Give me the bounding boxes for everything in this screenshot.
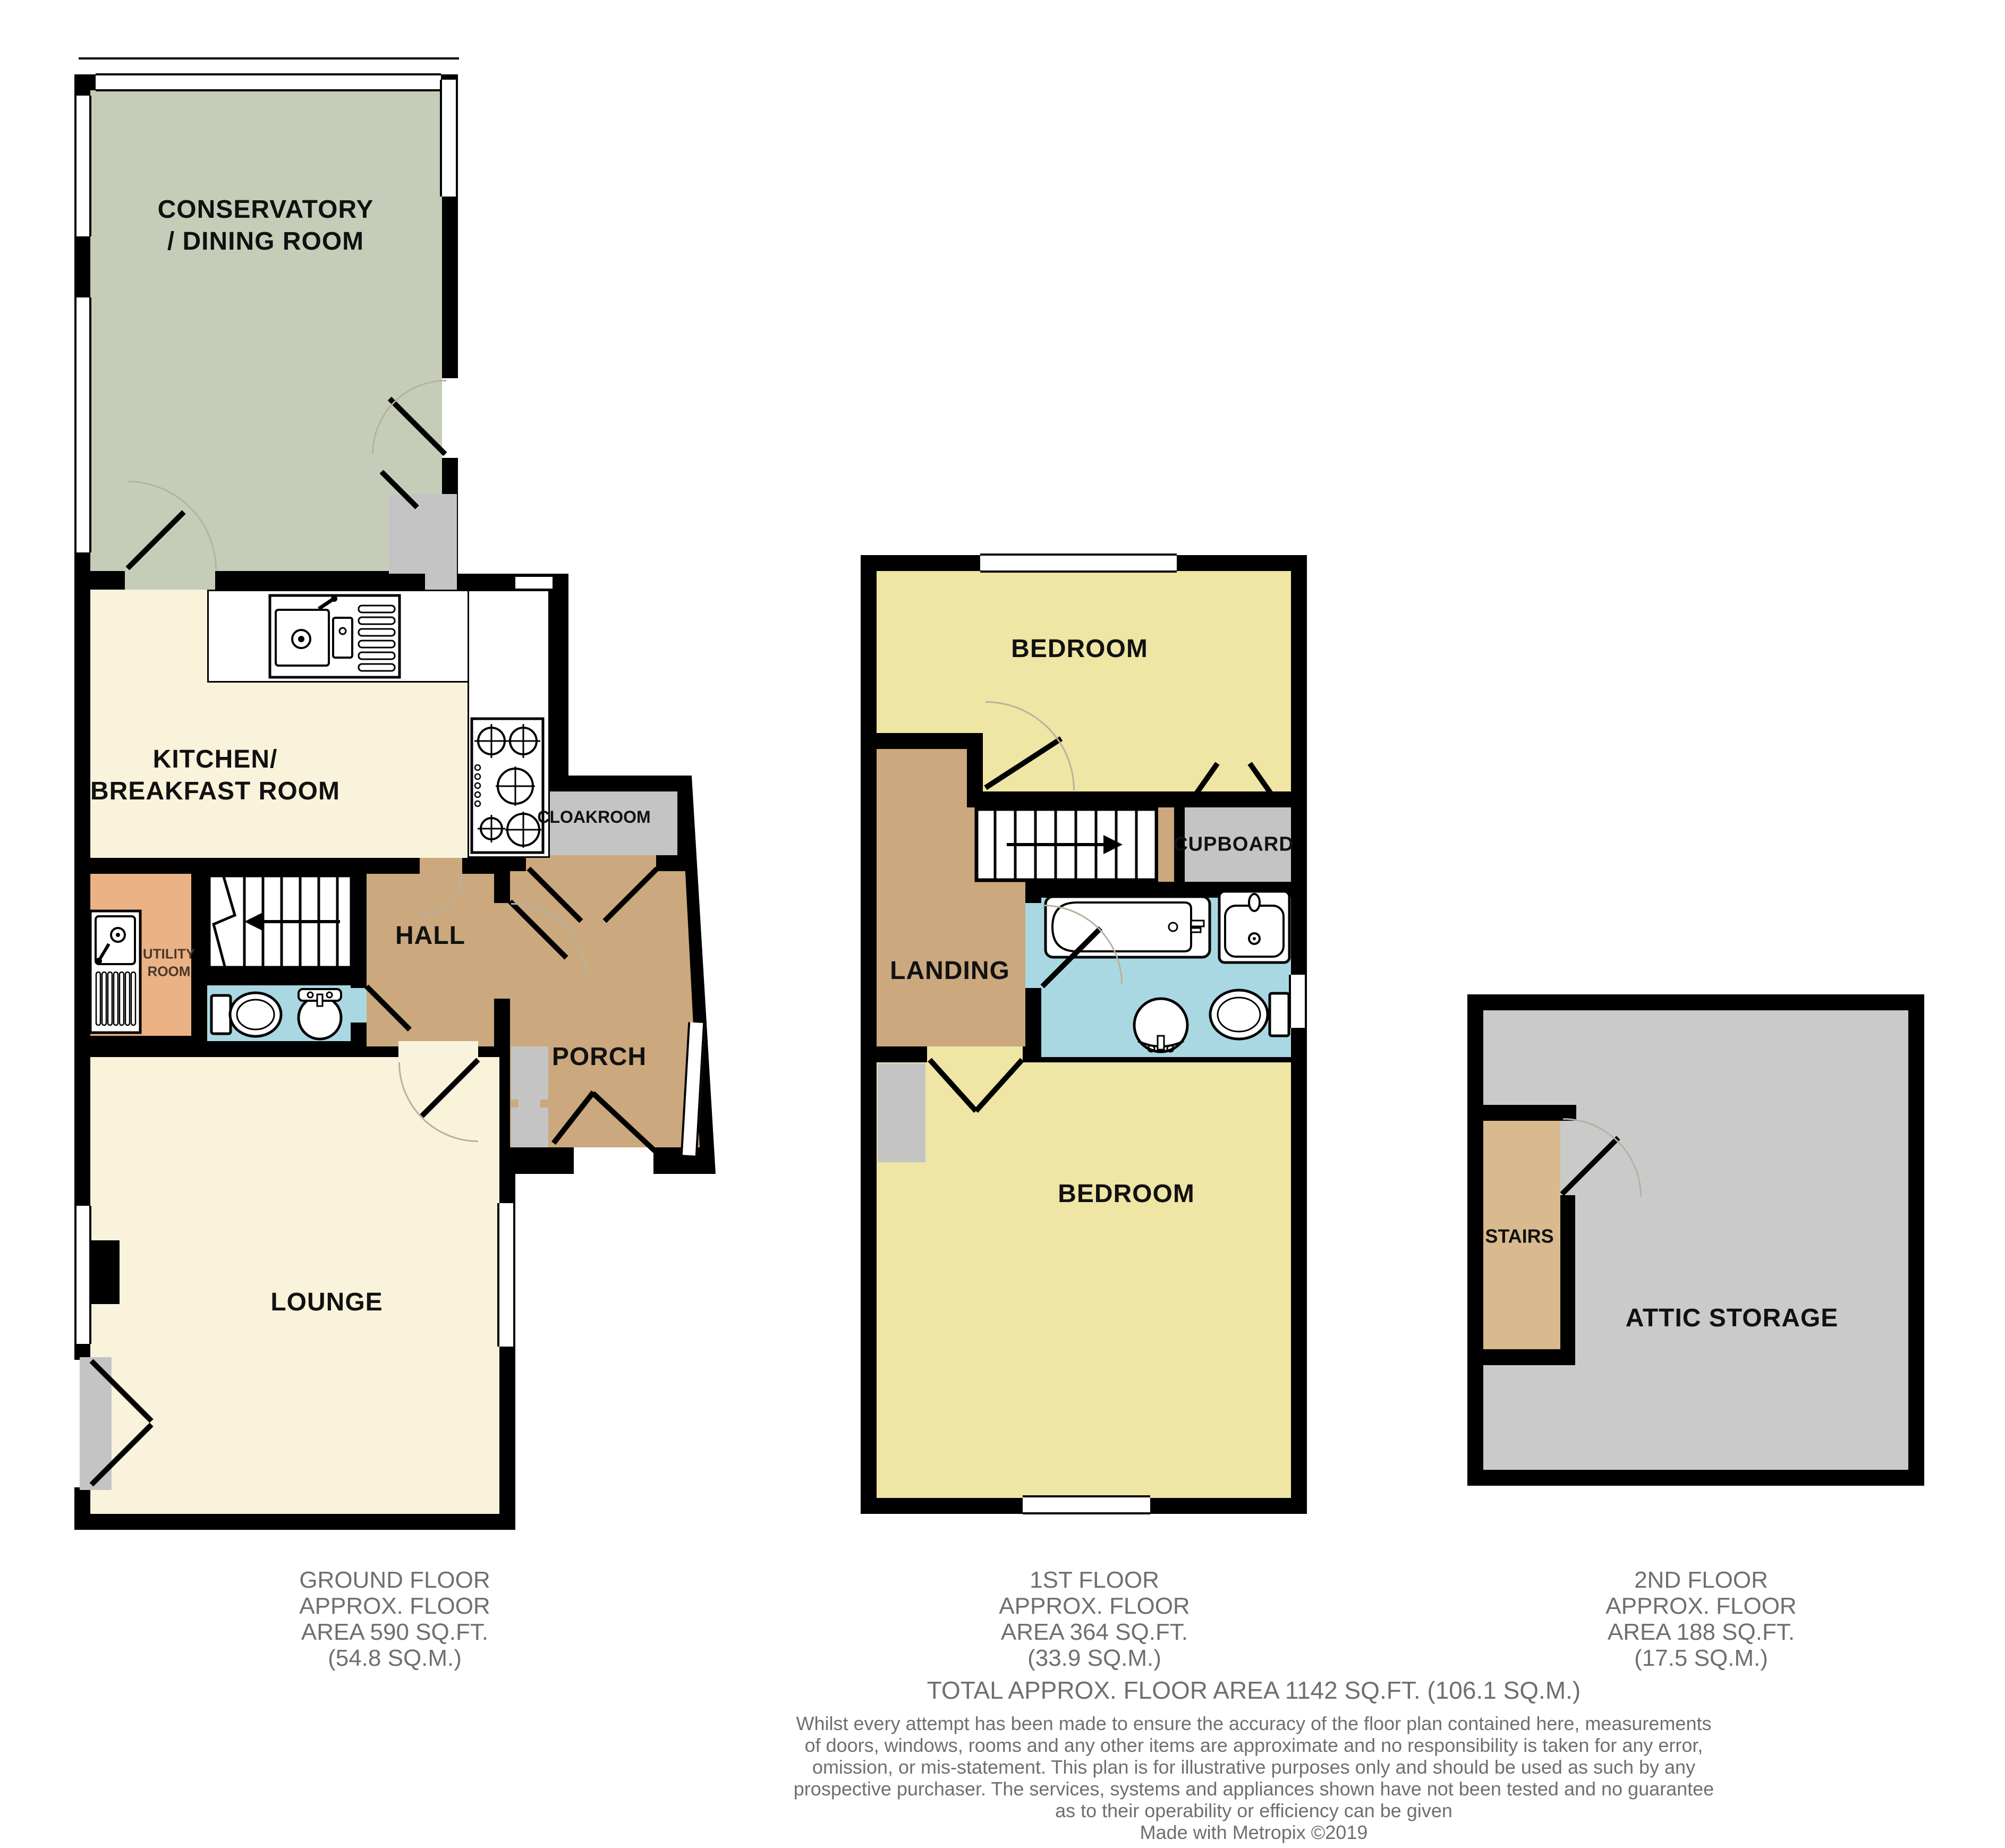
door-gap-hall-lounge bbox=[398, 1041, 478, 1058]
label-porch: PORCH bbox=[552, 1041, 647, 1073]
stairs-landing-strip bbox=[1158, 807, 1174, 882]
basin-icon bbox=[1126, 998, 1195, 1061]
utility-sink-icon bbox=[89, 909, 142, 1034]
window-conservatory-right bbox=[440, 80, 458, 197]
door-gap-conservatory-kitchen bbox=[125, 571, 215, 590]
wall-landing-bedroom bbox=[967, 749, 983, 807]
door-gap-bathroom bbox=[1025, 903, 1041, 988]
floorplan-canvas: CONSERVATORY / DINING ROOM KITCHEN/ BREA… bbox=[0, 0, 2005, 1848]
footer-line: 1ST FLOOR bbox=[855, 1567, 1333, 1593]
footer-line: APPROX. FLOOR bbox=[855, 1593, 1333, 1619]
window-bedroom-back bbox=[1023, 1495, 1150, 1514]
wall-attic-stairs-right bbox=[1560, 1195, 1575, 1349]
label-attic-stairs: STAIRS bbox=[1485, 1224, 1553, 1248]
window-bedroom-front bbox=[980, 553, 1177, 573]
first-floor-footer: 1ST FLOOR APPROX. FLOOR AREA 364 SQ.FT. … bbox=[855, 1567, 1333, 1671]
conservatory-step-pad bbox=[389, 494, 457, 574]
disclaimer-line: of doors, windows, rooms and any other i… bbox=[696, 1735, 1812, 1756]
label-cloakroom: CLOAKROOM bbox=[537, 806, 650, 828]
conservatory-step-opening bbox=[425, 574, 457, 591]
stairs-up-icon bbox=[975, 807, 1158, 882]
label-bedroom-back: BEDROOM bbox=[1058, 1178, 1195, 1210]
wall-attic-stairs-bottom bbox=[1483, 1349, 1575, 1365]
wall-sink-icon bbox=[1218, 890, 1291, 964]
window-bathroom bbox=[1289, 975, 1307, 1028]
footer-line: APPROX. FLOOR bbox=[156, 1593, 634, 1619]
label-kitchen: KITCHEN/ BREAKFAST ROOM bbox=[90, 744, 340, 807]
kitchen-sink-icon bbox=[268, 594, 401, 679]
total-floor-area: TOTAL APPROX. FLOOR AREA 1142 SQ.FT. (10… bbox=[723, 1676, 1785, 1705]
label-attic: ATTIC STORAGE bbox=[1626, 1302, 1839, 1334]
lounge-chimney-breast bbox=[90, 1240, 120, 1304]
footer-line: AREA 188 SQ.FT. bbox=[1462, 1619, 1940, 1645]
footer-line: APPROX. FLOOR bbox=[1462, 1593, 1940, 1619]
porch-pad-1 bbox=[511, 1046, 548, 1100]
lounge-right-pad bbox=[518, 1094, 540, 1147]
label-bedroom-front: BEDROOM bbox=[1011, 633, 1148, 665]
door-gap-bedroom-back bbox=[927, 1046, 1023, 1062]
footer-line: AREA 364 SQ.FT. bbox=[855, 1619, 1333, 1645]
label-utility: UTILITY ROOM bbox=[143, 946, 195, 980]
label-cupboard: CUPBOARD bbox=[1173, 832, 1294, 857]
ground-floor-footer: GROUND FLOOR APPROX. FLOOR AREA 590 SQ.F… bbox=[156, 1567, 634, 1671]
window-kitchen bbox=[515, 575, 553, 591]
stove-icon bbox=[470, 717, 545, 854]
metropix-credit: Made with Metropix ©2019 bbox=[696, 1822, 1812, 1843]
label-lounge: LOUNGE bbox=[270, 1287, 383, 1318]
footer-line: (33.9 SQ.M.) bbox=[855, 1645, 1333, 1671]
door-gap-front-door bbox=[574, 1147, 653, 1174]
footer-line: 2ND FLOOR bbox=[1462, 1567, 1940, 1593]
disclaimer-line: Whilst every attempt has been made to en… bbox=[696, 1713, 1812, 1734]
bedroom-back-pad bbox=[878, 1063, 925, 1162]
disclaimer-line: prospective purchaser. The services, sys… bbox=[696, 1778, 1812, 1800]
footer-line: (17.5 SQ.M.) bbox=[1462, 1645, 1940, 1671]
toilet-icon bbox=[210, 989, 284, 1040]
footer-line: GROUND FLOOR bbox=[156, 1567, 634, 1593]
label-hall: HALL bbox=[395, 920, 465, 952]
label-conservatory: CONSERVATORY / DINING ROOM bbox=[158, 194, 374, 258]
window-conservatory-left-2 bbox=[74, 297, 91, 552]
label-landing: LANDING bbox=[890, 955, 1010, 987]
disclaimer-line: as to their operability or efficiency ca… bbox=[696, 1800, 1812, 1821]
toilet-icon bbox=[1207, 987, 1291, 1043]
door-gap-kitchen-hall bbox=[420, 858, 462, 875]
wall-stairs-top bbox=[983, 791, 1025, 807]
window-conservatory-top bbox=[96, 73, 441, 91]
conservatory-roof-line bbox=[79, 57, 459, 59]
window-conservatory-left-1 bbox=[74, 96, 91, 236]
stairs-up-icon bbox=[207, 874, 353, 969]
second-floor-footer: 2ND FLOOR APPROX. FLOOR AREA 188 SQ.FT. … bbox=[1462, 1567, 1940, 1671]
window-lounge-right bbox=[497, 1203, 515, 1347]
footer-line: (54.8 SQ.M.) bbox=[156, 1645, 634, 1671]
disclaimer-line: omission, or mis-statement. This plan is… bbox=[696, 1757, 1812, 1778]
room-bedroom-back bbox=[877, 1062, 1291, 1498]
basin-icon bbox=[292, 986, 348, 1042]
footer-line: AREA 590 SQ.FT. bbox=[156, 1619, 634, 1645]
door-gap-hall-porch bbox=[494, 903, 510, 999]
door-gap-wc-hall bbox=[351, 988, 367, 1023]
wall-attic-stairs-top bbox=[1483, 1105, 1576, 1121]
window-lounge-left bbox=[74, 1206, 91, 1344]
